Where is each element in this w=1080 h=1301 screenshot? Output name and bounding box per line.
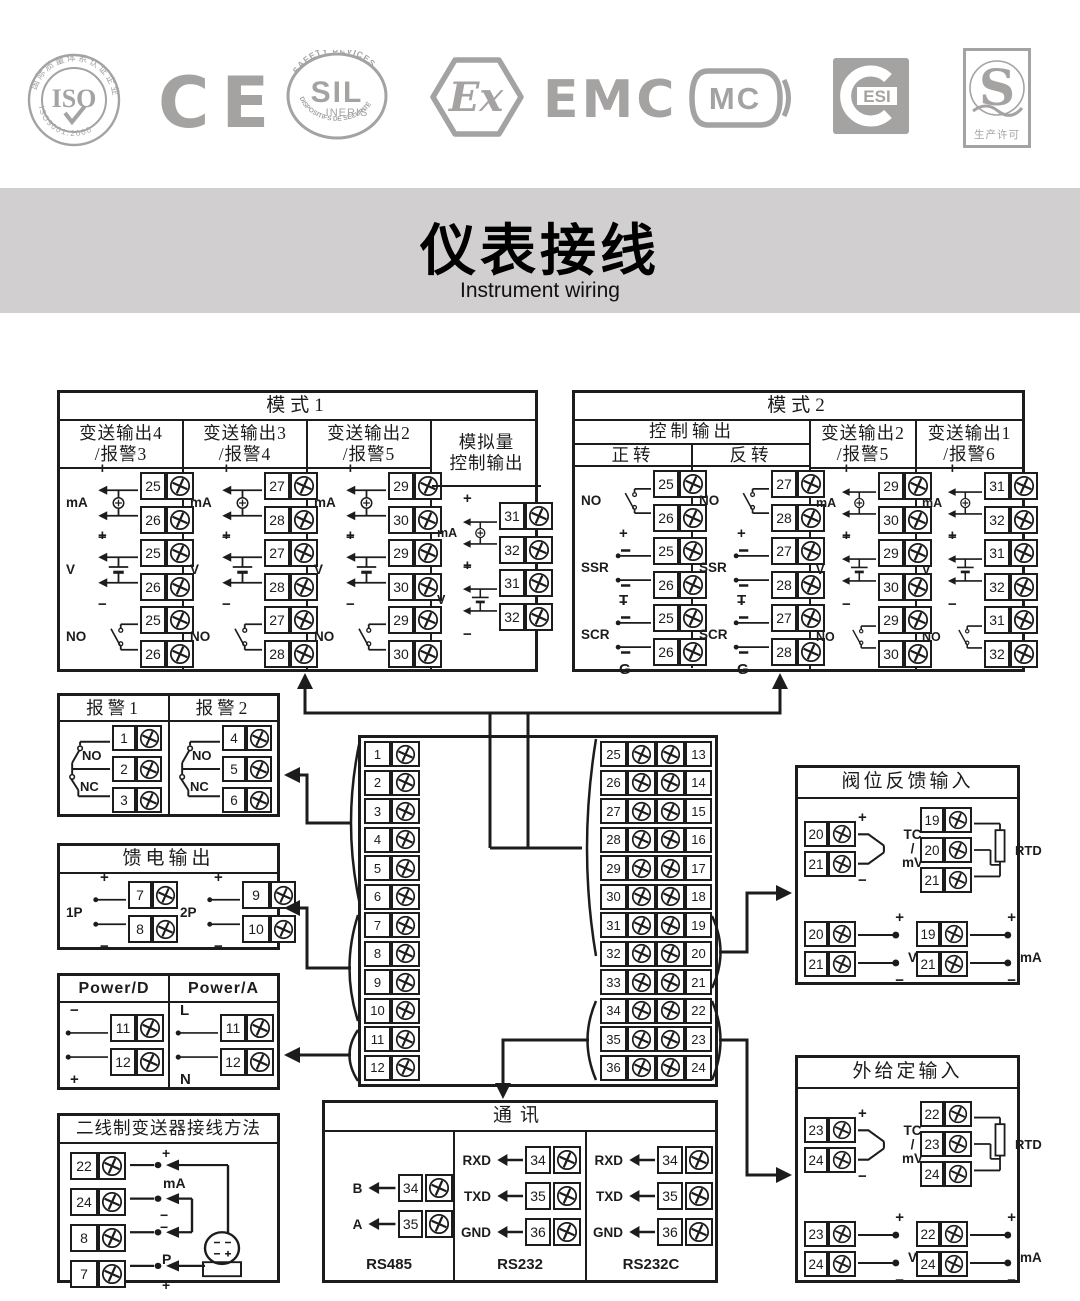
- transmitter-icon: [130, 1152, 254, 1292]
- screw-terminal-icon: [1010, 539, 1038, 567]
- screw-terminal-icon: [391, 969, 420, 995]
- no-relay-pair: NO 2930: [308, 603, 430, 670]
- screw-terminal-icon: [391, 827, 420, 853]
- screw-terminal-icon: [627, 798, 656, 824]
- rtd-label: RTD: [1015, 843, 1042, 858]
- screw-terminal-icon: [944, 867, 972, 893]
- screw-terminal-icon: [553, 1146, 581, 1174]
- terminal-number: 24: [70, 1188, 98, 1216]
- bracket-terminals-7-10: [350, 915, 359, 1021]
- screw-terminal-icon: [944, 837, 972, 863]
- terminal-number: 24: [916, 1251, 940, 1277]
- scr-glyph: TG: [729, 604, 769, 666]
- mode1-title: 模式1: [60, 393, 535, 421]
- terminal-number: 32: [984, 640, 1010, 668]
- mode1-col-output2: 变送输出2/报警5 mA +− 2930 V +− 2930 NO 2930: [308, 421, 432, 669]
- v-output-pair: V +− 2930: [308, 536, 430, 603]
- terminal-number: 34: [657, 1146, 683, 1174]
- v-output-pair: V +− 3132: [432, 566, 541, 633]
- power-wires-glyph: −+: [64, 1014, 108, 1076]
- no-glyph: [96, 606, 138, 668]
- terminal-number: 31: [600, 912, 627, 938]
- no-relay-pair: NO 2930: [811, 603, 915, 670]
- terminal-number: 27: [600, 798, 627, 824]
- screw-terminal-icon: [940, 1221, 968, 1247]
- screw-terminal-icon: [656, 827, 685, 853]
- left-arrow-icon: [627, 1146, 655, 1174]
- wire-dots-glyph: +−: [858, 1221, 904, 1277]
- screw-terminal-icon: [944, 1131, 972, 1157]
- screw-terminal-icon: [391, 798, 420, 824]
- mode2-col-reverse: 反转 NO 2728 SSR +− 2728 SCR TG 2728: [693, 445, 809, 668]
- ma-input-group: 2224 +− mA: [916, 1221, 1042, 1277]
- power-panel: Power/D −+ 1112 Power/A LN 1112: [57, 973, 280, 1090]
- ssr-glyph: +−: [611, 537, 651, 599]
- terminal-number: 26: [653, 571, 679, 599]
- terminal-number: 23: [804, 1117, 828, 1143]
- terminal-number: 28: [264, 506, 290, 534]
- terminal-number: 7: [128, 881, 152, 909]
- ma-glyph: +−: [461, 502, 497, 564]
- screw-terminal-icon: [1010, 472, 1038, 500]
- svg-text:Ex: Ex: [448, 74, 504, 121]
- terminal-number: 27: [264, 472, 290, 500]
- screw-terminal-icon: [136, 756, 162, 782]
- terminal-number: 35: [657, 1182, 683, 1210]
- external-setpoint-panel: 外给定输入 2324 +− TC/mV 222324 RTD 2324 +− V…: [795, 1055, 1020, 1283]
- feed-glyph: +−: [90, 881, 126, 943]
- screw-terminal-icon: [627, 998, 656, 1024]
- terminal-number: 7: [70, 1260, 98, 1288]
- screw-terminal-icon: [940, 921, 968, 947]
- wire-dots-glyph: +−: [970, 1221, 1016, 1277]
- terminal-number: 11: [220, 1014, 246, 1042]
- screw-terminal-icon: [525, 569, 553, 597]
- terminal-number: 1: [364, 741, 391, 767]
- power-pair: LN 1112: [170, 1003, 277, 1087]
- screw-terminal-icon: [1010, 506, 1038, 534]
- terminal-number: 27: [771, 470, 797, 498]
- terminal-number: 26: [653, 504, 679, 532]
- screw-terminal-icon: [136, 1014, 164, 1042]
- terminal-number: 3: [364, 798, 391, 824]
- terminal-number: 36: [600, 1055, 627, 1081]
- comm-row: TXD35: [457, 1182, 585, 1210]
- screw-terminal-icon: [246, 756, 272, 782]
- screw-terminal-icon: [391, 770, 420, 796]
- left-arrow-icon: [495, 1146, 523, 1174]
- svg-text:S: S: [979, 58, 1015, 117]
- screw-terminal-icon: [391, 884, 420, 910]
- ssr-output-pair: SSR +− 2526: [575, 534, 691, 601]
- terminal-number: 29: [388, 606, 414, 634]
- ma-label: mA: [1020, 1250, 1042, 1265]
- rs232c-label: RS232C: [587, 1256, 715, 1273]
- terminal-number: 24: [920, 1161, 944, 1187]
- feed-pair-2p: 2P +− 910: [174, 877, 286, 947]
- two-wire-transmitter-panel: 二线制变送器接线方法 22 24 8 7 + mA − − P +: [57, 1113, 280, 1283]
- terminal-number: 32: [984, 573, 1010, 601]
- terminal-number: 32: [984, 506, 1010, 534]
- feed-output-panel: 馈电输出 1P +− 78 2P +− 910: [57, 843, 280, 950]
- terminal-number: 32: [499, 536, 525, 564]
- no-relay-pair: NO 3132: [917, 603, 1022, 670]
- left-arrow-icon: [366, 1174, 395, 1202]
- terminal-number: 34: [398, 1174, 424, 1202]
- terminal-number: 1: [112, 725, 136, 751]
- terminal-number: 29: [600, 855, 627, 881]
- terminal-number: 30: [878, 573, 904, 601]
- screw-terminal-icon: [246, 725, 272, 751]
- svg-text:SIL: SIL: [311, 76, 364, 109]
- svg-text:INERIS: INERIS: [326, 107, 369, 119]
- v-output-pair: V +− 3132: [917, 536, 1022, 603]
- comm-panel: 通讯 B34 A35 RS485 RXD34 TXD35 GND36 RS232…: [322, 1100, 718, 1283]
- svg-text:ESI: ESI: [863, 87, 890, 106]
- terminal-number: 19: [916, 921, 940, 947]
- ma-glyph: +−: [946, 472, 982, 534]
- terminal-number: 9: [364, 969, 391, 995]
- mode1-col-output4: 变送输出4/报警3 mA +− 2526 V +− 2526 NO 2526: [60, 421, 184, 669]
- terminal-number: 6: [364, 884, 391, 910]
- terminal-number: 12: [110, 1048, 136, 1076]
- terminal-number: 35: [525, 1182, 551, 1210]
- v-glyph: +−: [461, 569, 497, 631]
- screw-terminal-icon: [656, 798, 685, 824]
- terminal-number: 24: [804, 1147, 828, 1173]
- terminal-number: 26: [600, 770, 627, 796]
- terminal-number: 20: [804, 821, 828, 847]
- terminal-number: 22: [916, 1221, 940, 1247]
- terminal-number: 8: [128, 915, 152, 943]
- rs485-section: B34 A35 RS485: [325, 1132, 455, 1283]
- ex-logo: Ex: [430, 51, 524, 143]
- terminal-number: 7: [364, 912, 391, 938]
- control-output-header: 控制输出: [575, 421, 809, 445]
- terminal-number: 30: [388, 506, 414, 534]
- terminal-number: 35: [600, 1026, 627, 1052]
- page-title: 仪表接线: [0, 206, 1080, 287]
- page-subtitle: Instrument wiring: [0, 279, 1080, 303]
- screw-terminal-icon: [627, 741, 656, 767]
- feed-glyph: +−: [204, 881, 240, 943]
- terminal-number: 28: [600, 827, 627, 853]
- terminal-number: 29: [388, 539, 414, 567]
- terminal-number: 31: [984, 606, 1010, 634]
- comm-row: TXD35: [589, 1182, 715, 1210]
- ma-output-pair: mA +− 2728: [184, 469, 306, 536]
- screw-terminal-icon: [685, 1182, 713, 1210]
- screw-terminal-icon: [944, 1101, 972, 1127]
- screw-terminal-icon: [98, 1188, 126, 1216]
- terminal-number: 34: [600, 998, 627, 1024]
- terminal-number: 19: [685, 912, 712, 938]
- screw-terminal-icon: [828, 851, 856, 877]
- v-output-pair: V +− 2526: [60, 536, 182, 603]
- screw-terminal-icon: [944, 807, 972, 833]
- terminal-number: 31: [499, 569, 525, 597]
- terminal-number: 31: [984, 539, 1010, 567]
- screw-terminal-icon: [391, 1026, 420, 1052]
- no-glyph: [611, 470, 651, 532]
- mode2-panel: 模式2 控制输出 正转 NO 2526 SSR +− 2526: [572, 390, 1025, 672]
- terminal-number: 32: [499, 603, 525, 631]
- terminal-number: 21: [804, 851, 828, 877]
- mode2-col-output2: 变送输出2/报警5 mA +− 2930 V +− 2930 NO 2930: [811, 421, 917, 669]
- v-glyph: +−: [840, 539, 876, 601]
- terminal-number: 18: [685, 884, 712, 910]
- alarm1-column: 报警1 NONC 123: [60, 696, 170, 814]
- terminal-number: 12: [364, 1055, 391, 1081]
- wire-dots-glyph: +−: [858, 921, 904, 977]
- no-glyph: [840, 606, 876, 668]
- terminal-number: 27: [771, 537, 797, 565]
- no-glyph: [344, 606, 386, 668]
- comm-row: RXD34: [457, 1146, 585, 1174]
- screw-terminal-icon: [391, 1055, 420, 1081]
- left-arrow-icon: [366, 1210, 395, 1238]
- rs232-label: RS232: [455, 1256, 585, 1273]
- screw-terminal-icon: [98, 1152, 126, 1180]
- terminal-number: 25: [140, 539, 166, 567]
- screw-terminal-icon: [553, 1182, 581, 1210]
- terminal-number: 25: [653, 537, 679, 565]
- ma-output-pair: mA +− 2526: [60, 469, 182, 536]
- screw-terminal-icon: [828, 921, 856, 947]
- terminal-number: 21: [804, 951, 828, 977]
- mode2-control-output-group: 控制输出 正转 NO 2526 SSR +− 2526 SCR: [575, 421, 811, 669]
- terminal-number: 16: [685, 827, 712, 853]
- left-arrow-icon: [627, 1218, 655, 1246]
- terminal-number: 19: [920, 807, 944, 833]
- screw-terminal-icon: [553, 1218, 581, 1246]
- ma-output-pair: mA +− 3132: [917, 469, 1022, 536]
- two-wire-body: 22 24 8 7 + mA − − P +: [60, 1144, 277, 1285]
- screw-terminal-icon: [525, 603, 553, 631]
- svg-text:MC: MC: [709, 81, 761, 116]
- terminal-number: 28: [771, 571, 797, 599]
- terminal-number: 5: [364, 855, 391, 881]
- screw-terminal-icon: [627, 941, 656, 967]
- screw-terminal-icon: [828, 1221, 856, 1247]
- screw-terminal-icon: [1010, 573, 1038, 601]
- comm-row: GND36: [457, 1218, 585, 1246]
- terminal-column-1-12: 1 2 3 4 5 6 7 8 9 10 11 12: [364, 741, 420, 1081]
- terminal-number: 26: [140, 573, 166, 601]
- two-wire-title: 二线制变送器接线方法: [60, 1116, 277, 1144]
- terminal-number: 23: [804, 1221, 828, 1247]
- power-pair: −+ 1112: [60, 1003, 168, 1087]
- terminal-number: 29: [388, 472, 414, 500]
- ssr-glyph: +−: [729, 537, 769, 599]
- tc-mv-input-group: 2021 +− TC/mV: [804, 821, 923, 877]
- ma-glyph: +−: [96, 472, 138, 534]
- tc-junction-glyph: +−: [858, 1117, 896, 1173]
- rtd-resistor-glyph: [974, 807, 1012, 893]
- external-setpoint-title: 外给定输入: [798, 1058, 1017, 1089]
- screw-terminal-icon: [391, 998, 420, 1024]
- terminal-number: 17: [685, 855, 712, 881]
- ce-logo: CE: [158, 62, 281, 144]
- ma-glyph: +−: [344, 472, 386, 534]
- mc-logo: MC: [686, 66, 796, 130]
- terminal-number: 13: [685, 741, 712, 767]
- screw-terminal-icon: [828, 1147, 856, 1173]
- comm-row: B34: [329, 1174, 453, 1202]
- ma-glyph: +−: [840, 472, 876, 534]
- screw-terminal-icon: [627, 827, 656, 853]
- terminal-number: 34: [525, 1146, 551, 1174]
- screw-terminal-icon: [627, 912, 656, 938]
- screw-terminal-icon: [685, 1146, 713, 1174]
- screw-terminal-icon: [627, 855, 656, 881]
- terminal-number: 6: [222, 787, 246, 813]
- terminal-number: 36: [525, 1218, 551, 1246]
- screw-terminal-icon: [627, 969, 656, 995]
- terminal-number: 8: [364, 941, 391, 967]
- no-relay-pair: NO 2526: [575, 467, 691, 534]
- screw-terminal-icon: [627, 1026, 656, 1052]
- mode1-panel: 模式1 变送输出4/报警3 mA +− 2526 V +− 2526 NO 25…: [57, 390, 538, 672]
- alarm2-column: 报警2 NONC 456: [170, 696, 277, 814]
- screw-terminal-icon: [940, 951, 968, 977]
- comm-row: RXD34: [589, 1146, 715, 1174]
- no-nc-glyph: NONC: [66, 725, 110, 813]
- terminal-number: 11: [110, 1014, 136, 1042]
- certification-logo-bar: 国际质量体系认证企业 ISO9001:2000 ISO CE SAFETY DE…: [0, 40, 1080, 162]
- screw-terminal-icon: [1010, 640, 1038, 668]
- valve-feedback-panel: 阀位反馈输入 2021 +− TC/mV 192021 RTD 2021 +− …: [795, 765, 1020, 985]
- v-input-group: 2021 +− V: [804, 921, 917, 977]
- svg-text:SAFETY DEVICES: SAFETY DEVICES: [291, 50, 379, 75]
- ma-input-group: 1921 +− mA: [916, 921, 1042, 977]
- terminal-number: 30: [878, 640, 904, 668]
- screw-terminal-icon: [656, 884, 685, 910]
- terminal-number: 30: [600, 884, 627, 910]
- terminal-number: 20: [920, 837, 944, 863]
- terminal-number: 26: [653, 638, 679, 666]
- screw-terminal-icon: [656, 1055, 685, 1081]
- iso-logo: 国际质量体系认证企业 ISO9001:2000 ISO: [24, 43, 124, 157]
- screw-terminal-icon: [656, 912, 685, 938]
- screw-terminal-icon: [828, 951, 856, 977]
- screw-terminal-icon: [98, 1224, 126, 1252]
- rs232-section: RXD34 TXD35 GND36 RS232: [455, 1132, 587, 1283]
- terminal-number: 31: [984, 472, 1010, 500]
- alarm-relay-group: NONC 123: [60, 722, 168, 816]
- screw-terminal-icon: [246, 1048, 274, 1076]
- terminal-number: 28: [771, 638, 797, 666]
- screw-terminal-icon: [656, 969, 685, 995]
- screw-terminal-icon: [391, 741, 420, 767]
- screw-terminal-icon: [391, 912, 420, 938]
- screw-terminal-icon: [525, 536, 553, 564]
- terminal-number: 21: [916, 951, 940, 977]
- terminal-number: 36: [657, 1218, 683, 1246]
- screw-terminal-icon: [391, 855, 420, 881]
- screw-terminal-icon: [627, 884, 656, 910]
- rtd-resistor-glyph: [974, 1101, 1012, 1187]
- rtd-input-group: 222324 RTD: [920, 1101, 1042, 1187]
- mode1-col-analog: 模拟量控制输出 mA +− 3132 V +− 3132: [432, 421, 541, 669]
- ma-output-pair: mA +− 2930: [308, 469, 430, 536]
- mode2-title: 模式2: [575, 393, 1022, 421]
- terminal-number: 30: [388, 573, 414, 601]
- terminal-number: 30: [388, 640, 414, 668]
- terminal-number: 8: [70, 1224, 98, 1252]
- terminal-number: 32: [600, 941, 627, 967]
- no-relay-pair: NO 2728: [693, 467, 809, 534]
- wire-dots-glyph: +−: [970, 921, 1016, 977]
- no-relay-pair: NO 2728: [184, 603, 306, 670]
- screw-terminal-icon: [425, 1210, 453, 1238]
- v-output-pair: V +− 2728: [184, 536, 306, 603]
- screw-terminal-icon: [685, 1218, 713, 1246]
- terminal-number: 20: [804, 921, 828, 947]
- terminal-number: 24: [804, 1251, 828, 1277]
- terminal-number: 27: [264, 606, 290, 634]
- terminal-number: 25: [140, 606, 166, 634]
- terminal-number: 29: [878, 539, 904, 567]
- terminal-number: 10: [364, 998, 391, 1024]
- terminal-number: 22: [920, 1101, 944, 1127]
- screw-terminal-icon: [270, 915, 296, 943]
- terminal-number: 15: [685, 798, 712, 824]
- terminal-number: 12: [220, 1048, 246, 1076]
- terminal-number: 26: [140, 506, 166, 534]
- terminal-number: 25: [653, 470, 679, 498]
- ma-output-pair: mA +− 3132: [432, 499, 541, 566]
- ssr-output-pair: SSR +− 2728: [693, 534, 809, 601]
- screw-terminal-icon: [1010, 606, 1038, 634]
- terminal-number: 9: [242, 881, 270, 909]
- rs232c-section: RXD34 TXD35 GND36 RS232C: [587, 1132, 715, 1283]
- terminal-number: 27: [264, 539, 290, 567]
- terminal-number: 29: [878, 606, 904, 634]
- terminal-number: 10: [242, 915, 270, 943]
- bracket-terminals-11-12: [350, 1030, 359, 1081]
- comm-title: 通讯: [325, 1103, 715, 1132]
- no-nc-glyph: NONC: [176, 725, 220, 813]
- v-input-group: 2324 +− V: [804, 1221, 917, 1277]
- terminal-number: 25: [653, 604, 679, 632]
- screw-terminal-icon: [136, 787, 162, 813]
- screw-terminal-icon: [525, 502, 553, 530]
- scr-output-pair: SCR TG 2728: [693, 601, 809, 668]
- screw-terminal-icon: [98, 1260, 126, 1288]
- terminal-number: 26: [140, 640, 166, 668]
- comm-row: A35: [329, 1210, 453, 1238]
- no-glyph: [729, 470, 769, 532]
- terminal-number: 28: [771, 504, 797, 532]
- power-a-column: Power/A LN 1112: [170, 976, 277, 1087]
- ma-label: mA: [1020, 950, 1042, 965]
- terminal-number: 22: [685, 998, 712, 1024]
- screw-terminal-icon: [270, 881, 296, 909]
- comm-row: GND36: [589, 1218, 715, 1246]
- no-relay-pair: NO 2526: [60, 603, 182, 670]
- feed-output-title: 馈电输出: [60, 846, 277, 874]
- screw-terminal-icon: [656, 741, 685, 767]
- terminal-number: 35: [398, 1210, 424, 1238]
- valve-feedback-title: 阀位反馈输入: [798, 768, 1017, 799]
- terminal-number: 21: [920, 867, 944, 893]
- screw-terminal-icon: [246, 787, 272, 813]
- terminal-column-25-36-13-24: 2513 2614 2715 2816 2917 3018 3119 3220 …: [600, 741, 712, 1081]
- screw-terminal-icon: [391, 941, 420, 967]
- v-glyph: +−: [220, 539, 262, 601]
- terminal-number: 23: [920, 1131, 944, 1157]
